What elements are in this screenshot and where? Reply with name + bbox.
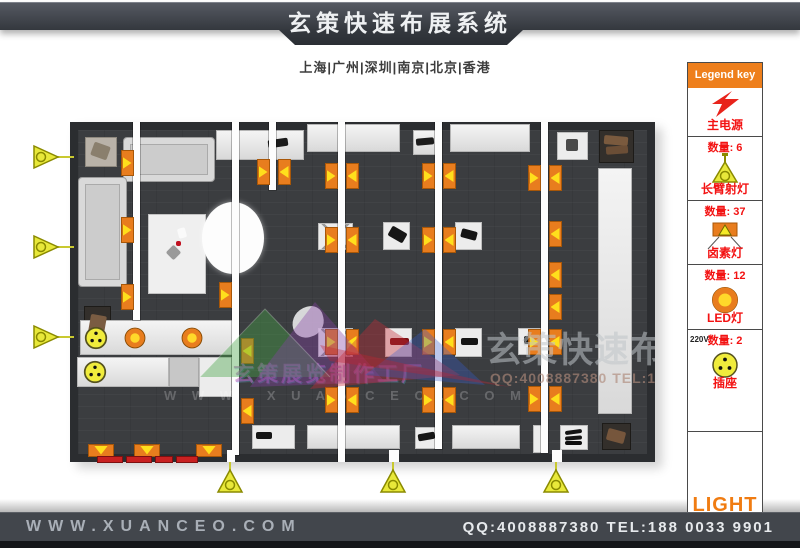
long-arm-spotlight-marker bbox=[32, 323, 74, 356]
lightning-icon bbox=[708, 91, 742, 117]
halogen-lamp-marker bbox=[549, 165, 562, 191]
legend-panel: Legend key 主电源 数量: 6 长臂射灯 数量: 37 bbox=[687, 62, 763, 534]
watermark-title: 玄策快速布展系统 bbox=[486, 322, 655, 373]
wall-notch bbox=[552, 450, 562, 462]
halogen-lamp-marker bbox=[241, 398, 254, 424]
footer-bar: WWW.XUANCEO.COM QQ:4008887380 TEL:188 00… bbox=[0, 512, 800, 541]
furniture-counter bbox=[450, 124, 530, 152]
page-title: 玄策快速布展系统 bbox=[0, 4, 800, 38]
triangle-icon bbox=[202, 446, 216, 455]
triangle-icon bbox=[445, 234, 454, 246]
display-item bbox=[565, 441, 582, 445]
halogen-lamp-marker bbox=[121, 217, 134, 243]
long-arm-spotlight-marker bbox=[379, 462, 407, 499]
display-item bbox=[256, 432, 272, 439]
halogen-lamp-marker bbox=[88, 444, 114, 457]
footer-gradient bbox=[0, 499, 800, 512]
halogen-lamp-marker bbox=[346, 163, 359, 189]
triangle-icon bbox=[551, 172, 560, 184]
furniture-counter bbox=[452, 425, 520, 449]
triangle-icon bbox=[123, 157, 132, 169]
triangle-icon bbox=[123, 291, 132, 303]
triangle-icon bbox=[327, 234, 336, 246]
triangle-icon bbox=[243, 345, 252, 357]
halogen-lamp-marker bbox=[121, 150, 134, 176]
legend-label: 卤素灯 bbox=[688, 244, 762, 261]
halogen-lamp-marker bbox=[443, 387, 456, 413]
furniture-counter bbox=[307, 425, 400, 449]
triangle-icon bbox=[530, 393, 539, 405]
halogen-lamp-marker bbox=[549, 221, 562, 247]
halogen-lamp-marker bbox=[325, 163, 338, 189]
stage: 玄策快速布展系统 上海|广州|深圳|南京|北京|香港 W W W . X U A… bbox=[0, 0, 800, 548]
triangle-icon bbox=[140, 446, 154, 455]
legend-label: LED灯 bbox=[688, 309, 762, 326]
watermark-contact: QQ:4008887380 TEL:188 003 bbox=[490, 370, 655, 386]
legend-count: 数量: 6 bbox=[688, 137, 762, 155]
halogen-lamp-marker bbox=[549, 386, 562, 412]
aisle-strip bbox=[232, 122, 239, 455]
long-arm-spotlight-marker bbox=[216, 462, 244, 499]
aisle-strip bbox=[269, 122, 276, 190]
triangle-icon bbox=[243, 405, 252, 417]
legend-item-socket: 220V 数量: 2 插座 bbox=[688, 329, 762, 431]
legend-item-halogen: 数量: 37 卤素灯 bbox=[688, 200, 762, 264]
furniture-counter bbox=[307, 124, 400, 152]
halogen-lamp-marker bbox=[528, 386, 541, 412]
legend-count: 数量: 37 bbox=[688, 201, 762, 219]
display-item bbox=[566, 139, 578, 151]
triangle-icon bbox=[551, 228, 560, 240]
long-arm-spotlight-marker bbox=[542, 462, 570, 499]
display-item bbox=[390, 338, 409, 345]
cities-subtitle: 上海|广州|深圳|南京|北京|香港 bbox=[0, 57, 790, 76]
halogen-lamp-marker bbox=[325, 227, 338, 253]
legend-item-main-power: 主电源 bbox=[688, 91, 762, 136]
triangle-icon bbox=[551, 301, 560, 313]
triangle-icon bbox=[551, 269, 560, 281]
halogen-lamp-marker bbox=[257, 159, 270, 185]
triangle-icon bbox=[348, 336, 357, 348]
legend-label: 长臂射灯 bbox=[688, 180, 762, 197]
halogen-lamp-marker bbox=[443, 227, 456, 253]
triangle-icon bbox=[530, 172, 539, 184]
legend-label: 插座 bbox=[688, 374, 762, 391]
legend-item-led: 数量: 12 LED灯 bbox=[688, 264, 762, 329]
halogen-lamp-marker bbox=[528, 165, 541, 191]
floor-plan: W W W . X U A N C E O . C O M 玄策展览制作工厂 玄… bbox=[70, 122, 655, 462]
footer-black-strip bbox=[0, 541, 800, 548]
display-item bbox=[461, 338, 478, 345]
halogen-lamp-marker bbox=[278, 159, 291, 185]
triangle-icon bbox=[348, 170, 357, 182]
long-arm-spotlight-marker bbox=[32, 233, 74, 266]
legend-title: Legend key bbox=[688, 63, 762, 88]
halogen-lamp-marker bbox=[219, 282, 232, 308]
triangle-icon bbox=[327, 394, 336, 406]
halogen-lamp-marker bbox=[346, 227, 359, 253]
triangle-icon bbox=[327, 336, 336, 348]
triangle-icon bbox=[327, 170, 336, 182]
triangle-icon bbox=[445, 170, 454, 182]
aisle-strip bbox=[338, 122, 345, 462]
red-strip bbox=[176, 456, 198, 463]
legend-label: 主电源 bbox=[688, 116, 762, 133]
triangle-icon bbox=[551, 393, 560, 405]
halogen-lamp-marker bbox=[549, 262, 562, 288]
furniture-counter bbox=[216, 130, 304, 160]
voltage-label: 220V bbox=[690, 335, 709, 344]
halogen-lamp-marker bbox=[196, 444, 222, 457]
wall-notch bbox=[389, 450, 399, 462]
halogen-lamp-marker bbox=[325, 329, 338, 355]
furniture-lgray bbox=[169, 357, 199, 387]
legend-item-long-arm-spotlight: 数量: 6 长臂射灯 bbox=[688, 136, 762, 200]
halogen-lamp-marker bbox=[134, 444, 160, 457]
halogen-lamp-marker bbox=[422, 329, 435, 355]
triangle-icon bbox=[424, 336, 433, 348]
triangle-icon bbox=[424, 394, 433, 406]
red-strip bbox=[155, 456, 173, 463]
long-arm-spotlight-marker bbox=[32, 143, 74, 176]
footer-contact: QQ:4008887380 TEL:188 0033 9901 bbox=[463, 519, 774, 536]
halogen-lamp-marker bbox=[422, 387, 435, 413]
led-lamp-marker bbox=[181, 327, 203, 349]
halogen-lamp-marker bbox=[346, 329, 359, 355]
display-item bbox=[176, 241, 181, 246]
halogen-lamp-marker bbox=[422, 163, 435, 189]
red-strip bbox=[97, 456, 123, 463]
halogen-lamp-marker bbox=[325, 387, 338, 413]
socket-marker bbox=[84, 326, 108, 350]
triangle-icon bbox=[445, 336, 454, 348]
triangle-icon bbox=[94, 446, 108, 455]
display-item bbox=[606, 145, 629, 155]
halogen-lamp-marker bbox=[443, 163, 456, 189]
red-strip bbox=[126, 456, 152, 463]
triangle-icon bbox=[424, 170, 433, 182]
triangle-icon bbox=[221, 289, 230, 301]
halogen-lamp-marker bbox=[549, 294, 562, 320]
footer-website: WWW.XUANCEO.COM bbox=[26, 518, 302, 536]
triangle-icon bbox=[259, 166, 268, 178]
triangle-icon bbox=[348, 394, 357, 406]
triangle-icon bbox=[280, 166, 289, 178]
aisle-strip bbox=[541, 122, 548, 453]
triangle-icon bbox=[348, 234, 357, 246]
triangle-icon bbox=[424, 234, 433, 246]
socket-marker bbox=[83, 360, 107, 384]
halogen-lamp-marker bbox=[422, 227, 435, 253]
legend-count: 数量: 12 bbox=[688, 265, 762, 283]
triangle-icon bbox=[445, 394, 454, 406]
watermark-studio: 玄策展览制作工厂 bbox=[233, 358, 425, 388]
aisle-strip bbox=[133, 122, 140, 320]
led-lamp-marker bbox=[124, 327, 146, 349]
aisle-strip bbox=[435, 122, 442, 449]
triangle-icon bbox=[123, 224, 132, 236]
halogen-lamp-marker bbox=[121, 284, 134, 310]
halogen-lamp-marker bbox=[346, 387, 359, 413]
halogen-lamp-marker bbox=[443, 329, 456, 355]
wall-notch bbox=[227, 450, 235, 462]
